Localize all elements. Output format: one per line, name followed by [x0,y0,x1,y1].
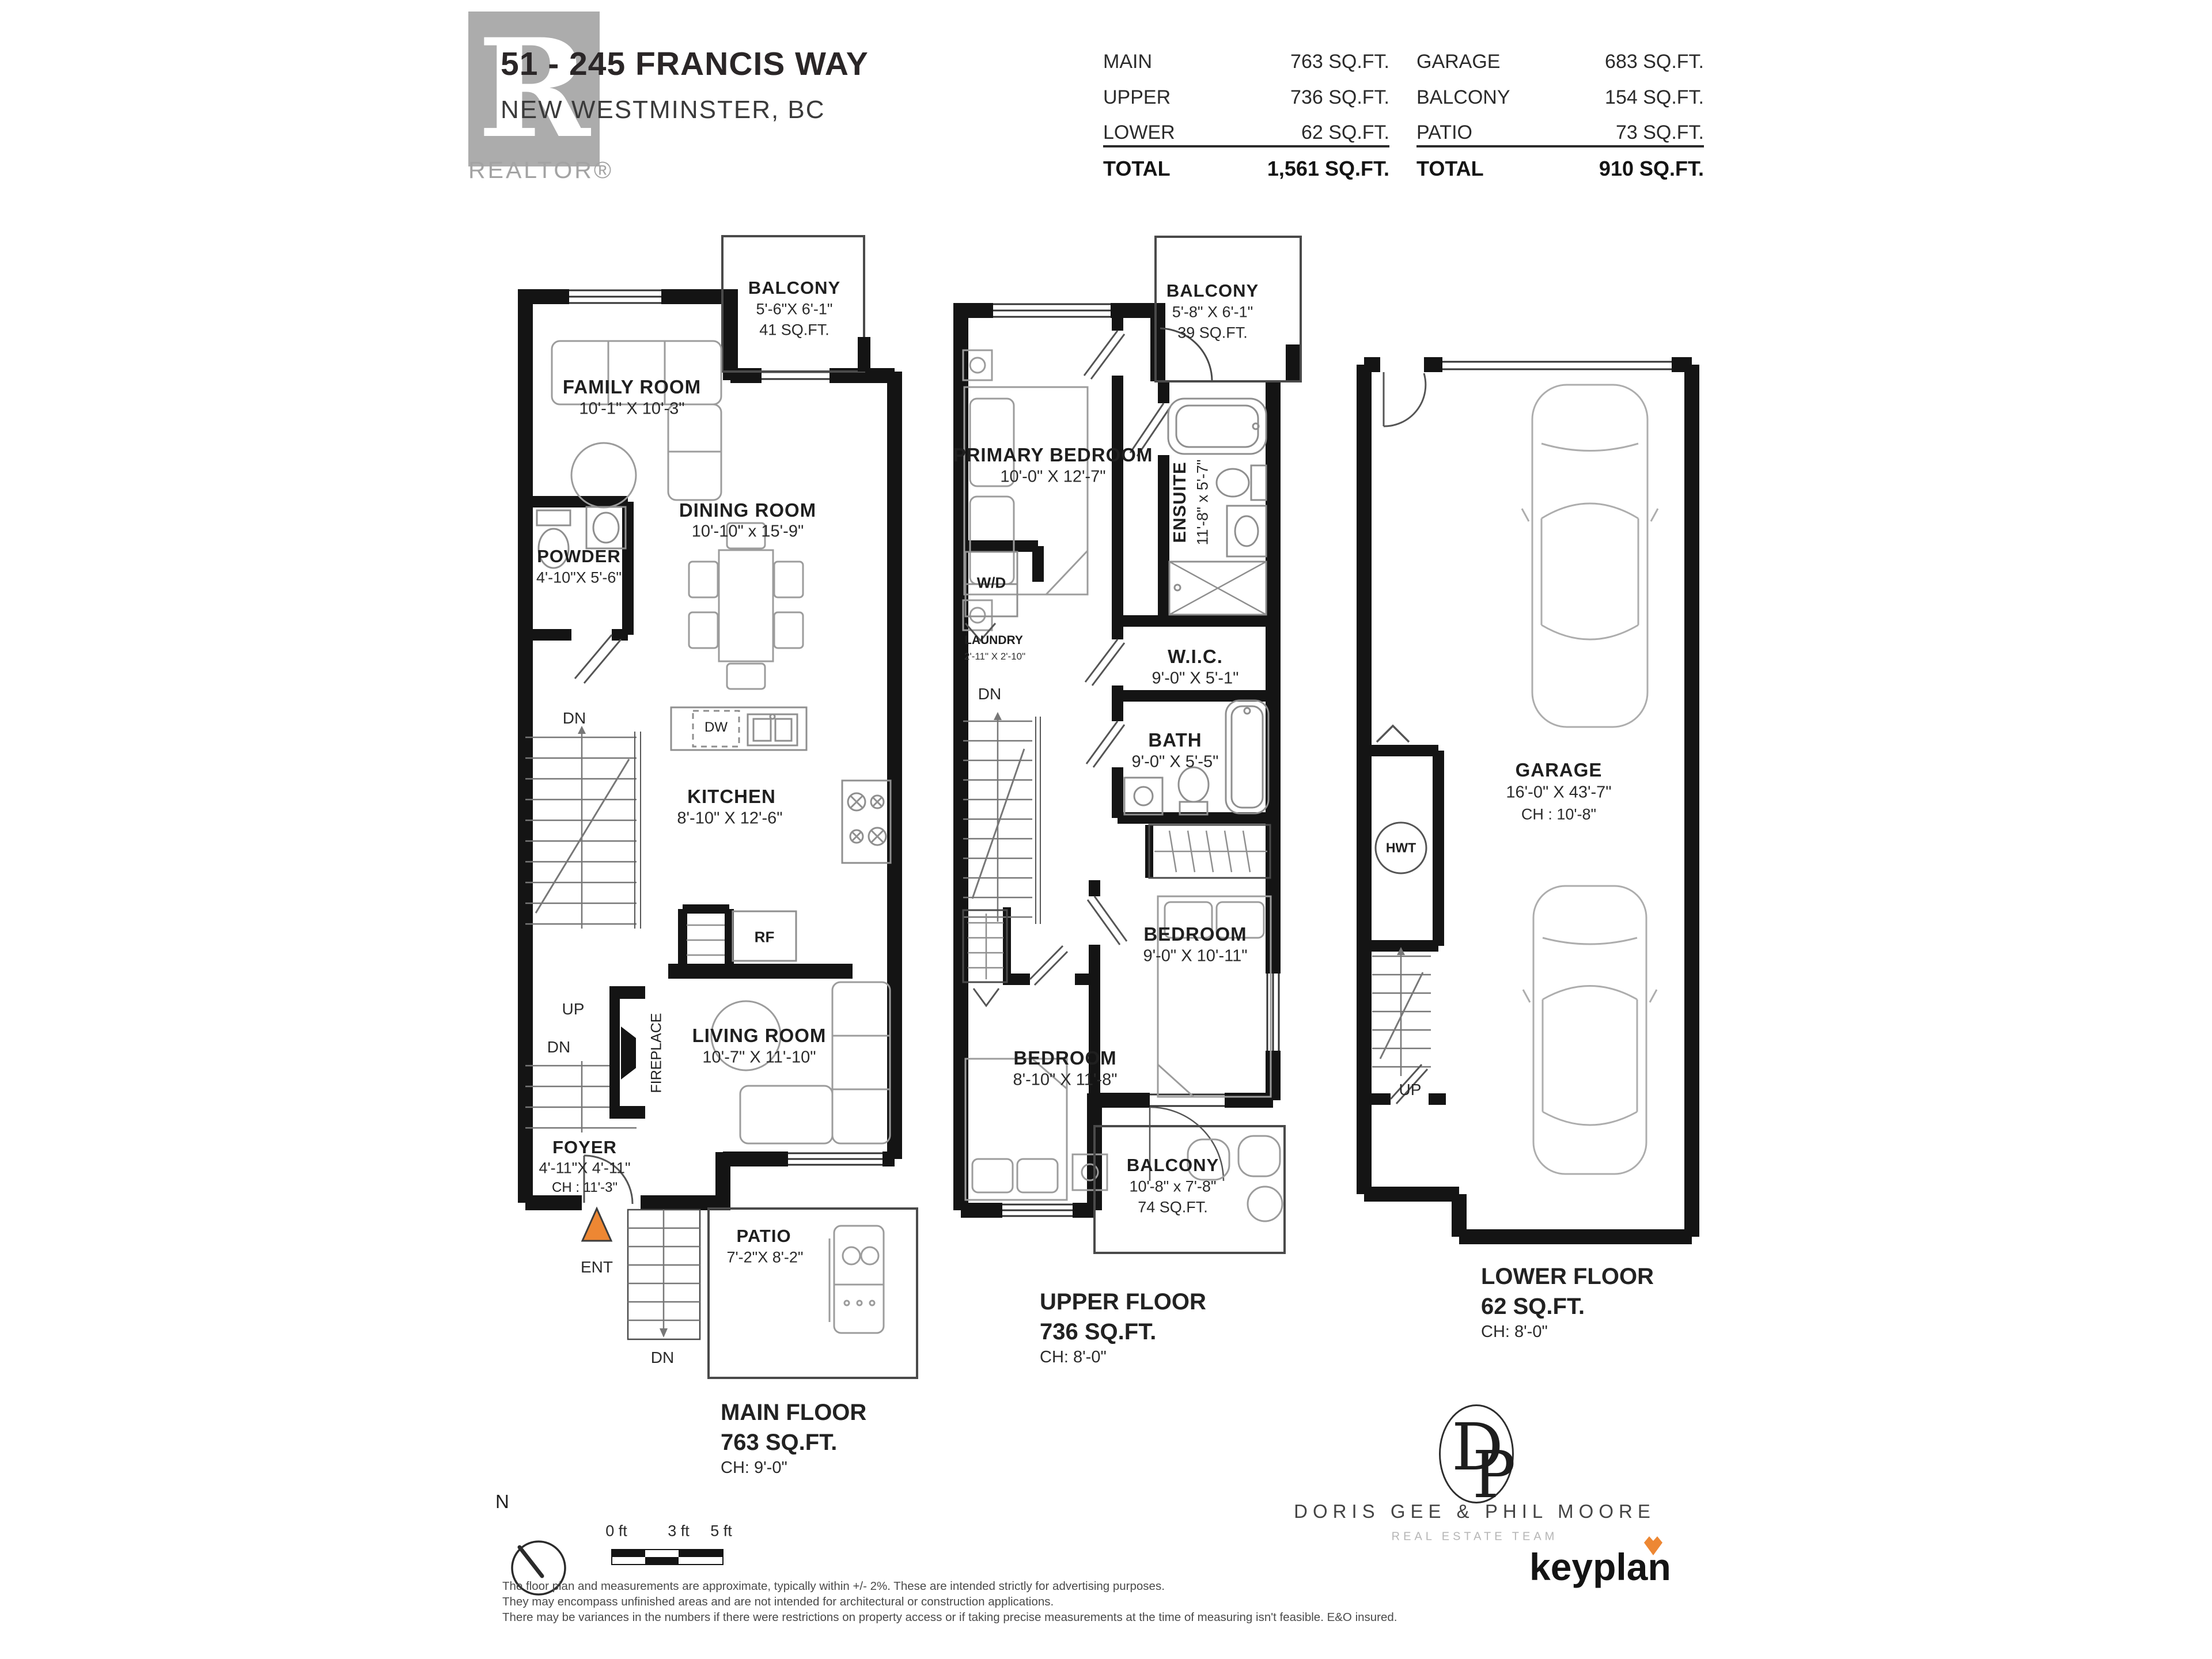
floor-label-main-3: CH: 9'-0" [721,1459,787,1478]
marker-hwt: HWT [1386,840,1416,856]
team-subtitle: REAL ESTATE TEAM [1392,1531,1558,1544]
floor-label-lower-2: 62 SQ.FT. [1481,1294,1585,1320]
area-total-value-right: 910 SQ.FT. [1532,157,1704,181]
room-area-balcony-upper-bottom: 74 SQ.FT. [1138,1199,1208,1217]
floor-label-upper-1: UPPER FLOOR [1040,1289,1206,1315]
room-label-garage: GARAGE [1516,759,1603,781]
marker-ent: ENT [581,1258,613,1277]
floor-label-upper-3: CH: 8'-0" [1040,1348,1107,1367]
room-label-balcony-upper-bottom: BALCONY [1127,1155,1219,1176]
room-dim-bedroom-left: 8'-10" X 11'-8" [1013,1071,1117,1090]
marker-dn-main-2: DN [547,1038,570,1056]
room-label-wic: W.I.C. [1168,646,1223,668]
room-dim-balcony-main: 5'-6"X 6'-1" [756,301,832,319]
room-area-balcony-main: 41 SQ.FT. [759,321,829,339]
area-label-garage: GARAGE [1416,51,1500,73]
area-label-patio: PATIO [1416,122,1472,144]
family-room-sofa-icon [552,341,721,507]
room-label-foyer: FOYER [552,1137,617,1158]
floor-label-lower-3: CH: 8'-0" [1481,1323,1548,1342]
room-label-dining-room: DINING ROOM [679,499,816,521]
room-dim-bath: 9'-0" X 5'-5" [1132,753,1219,772]
room-dim-garage: 16'-0" X 43'-7" [1506,783,1611,802]
stove-icon [842,781,891,863]
floorplan-page: R REALTOR® 51 - 245 FRANCIS WAY NEW WEST… [0,0,2212,1659]
area-label-main: MAIN [1103,51,1152,73]
area-total-label-left: TOTAL [1103,157,1171,181]
closet-right-icon [1149,825,1270,878]
room-label-balcony-upper-top: BALCONY [1166,281,1259,301]
area-value-main: 763 SQ.FT. [1227,51,1389,73]
marker-dn-upper: DN [978,685,1001,703]
area-label-lower: LOWER [1103,122,1175,144]
table-divider-right [1416,145,1704,147]
room-label-family-room: FAMILY ROOM [563,376,701,398]
room-label-bedroom-right: BEDROOM [1143,923,1247,945]
floor-label-main-1: MAIN FLOOR [721,1400,866,1426]
realtor-logo-letter: R [478,21,590,157]
keyplan-brand: keyplan [1529,1545,1671,1589]
kitchen-counter-icon [671,707,806,750]
room-label-ensuite: ENSUITE [1169,461,1190,543]
car-icon-2 [1523,886,1657,1174]
area-total-label-right: TOTAL [1416,157,1484,181]
room-dim-family-room: 10'-1" X 10'-3" [579,400,684,419]
room-dim-primary-bedroom: 10'-0" X 12'-7" [1000,468,1105,487]
compass-north-label: N [495,1491,510,1513]
bbq-icon [829,1226,884,1333]
room-label-bath: BATH [1148,729,1202,751]
fireplace-icon [609,986,645,1119]
floorplan-drawing [0,0,2212,1659]
scale-tick-0: 0 ft [605,1522,627,1540]
floor-label-lower-1: LOWER FLOOR [1481,1264,1654,1290]
disclaimer-line-1: The floor plan and measurements are appr… [502,1580,1165,1593]
room-label-patio: PATIO [736,1226,791,1247]
room-label-bedroom-left: BEDROOM [1013,1047,1116,1069]
room-dim-laundry: 2'-11" X 2'-10" [964,651,1025,662]
room-label-powder: POWDER [537,546,621,567]
car-icon-1 [1522,385,1658,727]
room-dim-foyer: 4'-11"X 4'-11" [539,1160,630,1177]
disclaimer-line-3: There may be variances in the numbers if… [502,1611,1397,1624]
area-value-patio: 73 SQ.FT. [1532,122,1704,144]
closet-left-icon [963,910,1007,1006]
table-divider-left [1103,145,1389,147]
room-ch-garage: CH : 10'-8" [1521,806,1596,824]
room-dim-patio: 7'-2"X 8'-2" [726,1249,803,1267]
room-dim-powder: 4'-10"X 5'-6" [536,569,622,587]
page-title-address: 51 - 245 FRANCIS WAY [501,45,869,83]
page-subtitle-city: NEW WESTMINSTER, BC [501,96,825,124]
upper-stairs [963,712,1040,924]
area-value-balcony: 154 SQ.FT. [1532,86,1704,109]
ent-marker-icon [582,1209,611,1241]
pantry-shelves [687,925,725,955]
realtor-logo: R [468,12,600,166]
powder-fixtures [537,507,626,683]
room-dim-kitchen: 8'-10" X 12'-6" [677,809,782,828]
room-ch-foyer: CH : 11'-3" [552,1180,618,1196]
realtor-logo-label: REALTOR® [468,157,613,184]
room-dim-dining-room: 10'-10" x 15'-9" [692,522,804,541]
room-label-living-room: LIVING ROOM [692,1025,827,1047]
dining-table-icon [689,523,803,689]
floor-label-upper-2: 736 SQ.FT. [1040,1319,1156,1345]
marker-rf: RF [755,929,775,946]
scale-tick-5: 5 ft [710,1522,732,1540]
area-value-upper: 736 SQ.FT. [1227,86,1389,109]
room-dim-living-room: 10'-7" X 11'-10" [702,1048,816,1067]
marker-up-lower: UP [1399,1081,1422,1099]
room-label-kitchen: KITCHEN [687,786,776,808]
garage-door-line [1442,362,1672,369]
marker-dn-main-1: DN [563,709,586,728]
room-dim-balcony-upper-bottom: 10'-8" x 7'-8" [1129,1178,1216,1196]
room-label-laundry: LAUNDRY [964,634,1023,647]
room-label-primary-bedroom: PRIMARY BEDROOM [953,444,1153,466]
marker-up-main: UP [562,1000,585,1018]
area-label-balcony: BALCONY [1416,86,1510,109]
area-total-value-left: 1,561 SQ.FT. [1227,157,1389,181]
marker-dw: DW [704,719,728,736]
team-name: DORIS GEE & PHIL MOORE [1294,1501,1656,1522]
scale-bar [612,1550,723,1565]
marker-wd: W/D [977,574,1006,592]
room-dim-ensuite: 11'-8" x 5'-7" [1194,459,1212,545]
area-value-lower: 62 SQ.FT. [1227,122,1389,144]
scale-tick-3: 3 ft [668,1522,690,1540]
room-area-balcony-upper-top: 39 SQ.FT. [1177,324,1248,342]
marker-dn-exterior: DN [651,1349,674,1367]
room-dim-bedroom-right: 9'-0" X 10'-11" [1143,947,1247,966]
room-dim-balcony-upper-top: 5'-8" X 6'-1" [1172,304,1253,321]
wd-unit-icon [965,552,1017,641]
area-value-garage: 683 SQ.FT. [1532,51,1704,73]
room-label-balcony-main: BALCONY [748,278,840,298]
disclaimer-line-2: They may encompass unfinished areas and … [502,1595,1054,1609]
floor-label-main-2: 763 SQ.FT. [721,1430,837,1456]
marker-fireplace: FIREPLACE [649,1013,665,1093]
exterior-stairs [628,1210,700,1339]
garage-man-door [1384,372,1426,426]
room-dim-wic: 9'-0" X 5'-1" [1152,669,1239,688]
area-label-upper: UPPER [1103,86,1171,109]
